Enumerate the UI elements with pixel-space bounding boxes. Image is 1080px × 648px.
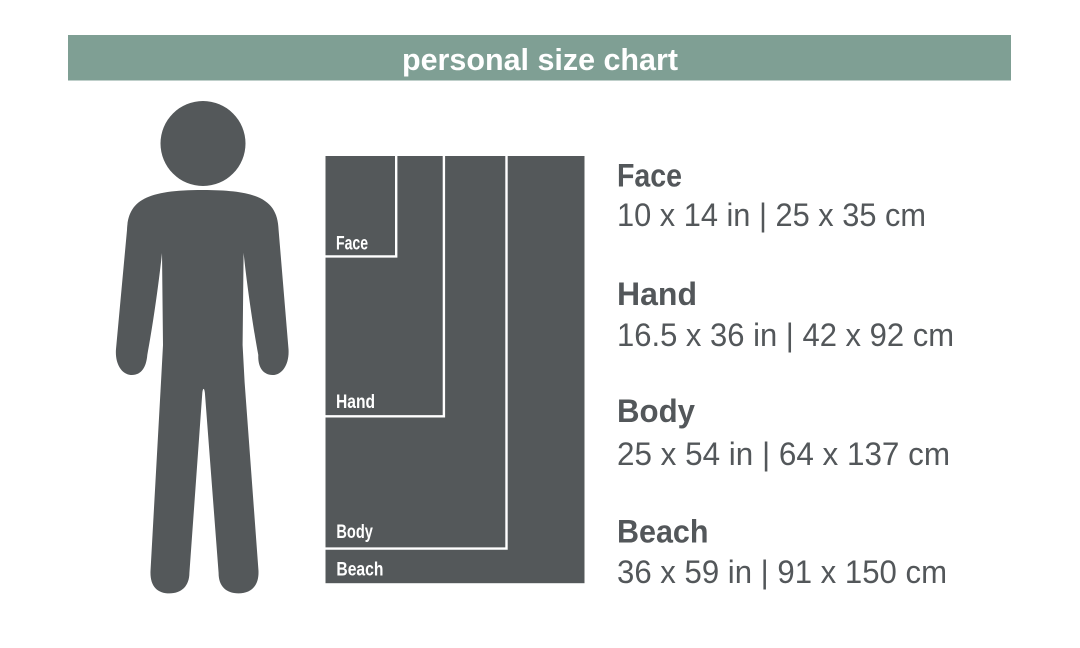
- svg-text:25 x 54 in | 64 x 137 cm: 25 x 54 in | 64 x 137 cm: [617, 436, 950, 472]
- svg-text:personal size chart: personal size chart: [402, 42, 678, 77]
- svg-text:10 x 14 in | 25 x 35 cm: 10 x 14 in | 25 x 35 cm: [617, 197, 926, 233]
- svg-text:Hand: Hand: [336, 392, 375, 413]
- svg-text:Beach: Beach: [336, 560, 383, 581]
- svg-text:16.5 x 36 in | 42 x 92 cm: 16.5 x 36 in | 42 x 92 cm: [617, 317, 954, 353]
- svg-text:36 x 59 in | 91 x 150 cm: 36 x 59 in | 91 x 150 cm: [617, 554, 947, 590]
- svg-text:Hand: Hand: [617, 276, 697, 312]
- svg-text:Body: Body: [336, 522, 373, 543]
- svg-text:Face: Face: [336, 233, 368, 254]
- svg-text:Body: Body: [617, 393, 695, 429]
- svg-text:Beach: Beach: [617, 514, 709, 550]
- svg-text:Face: Face: [617, 157, 682, 193]
